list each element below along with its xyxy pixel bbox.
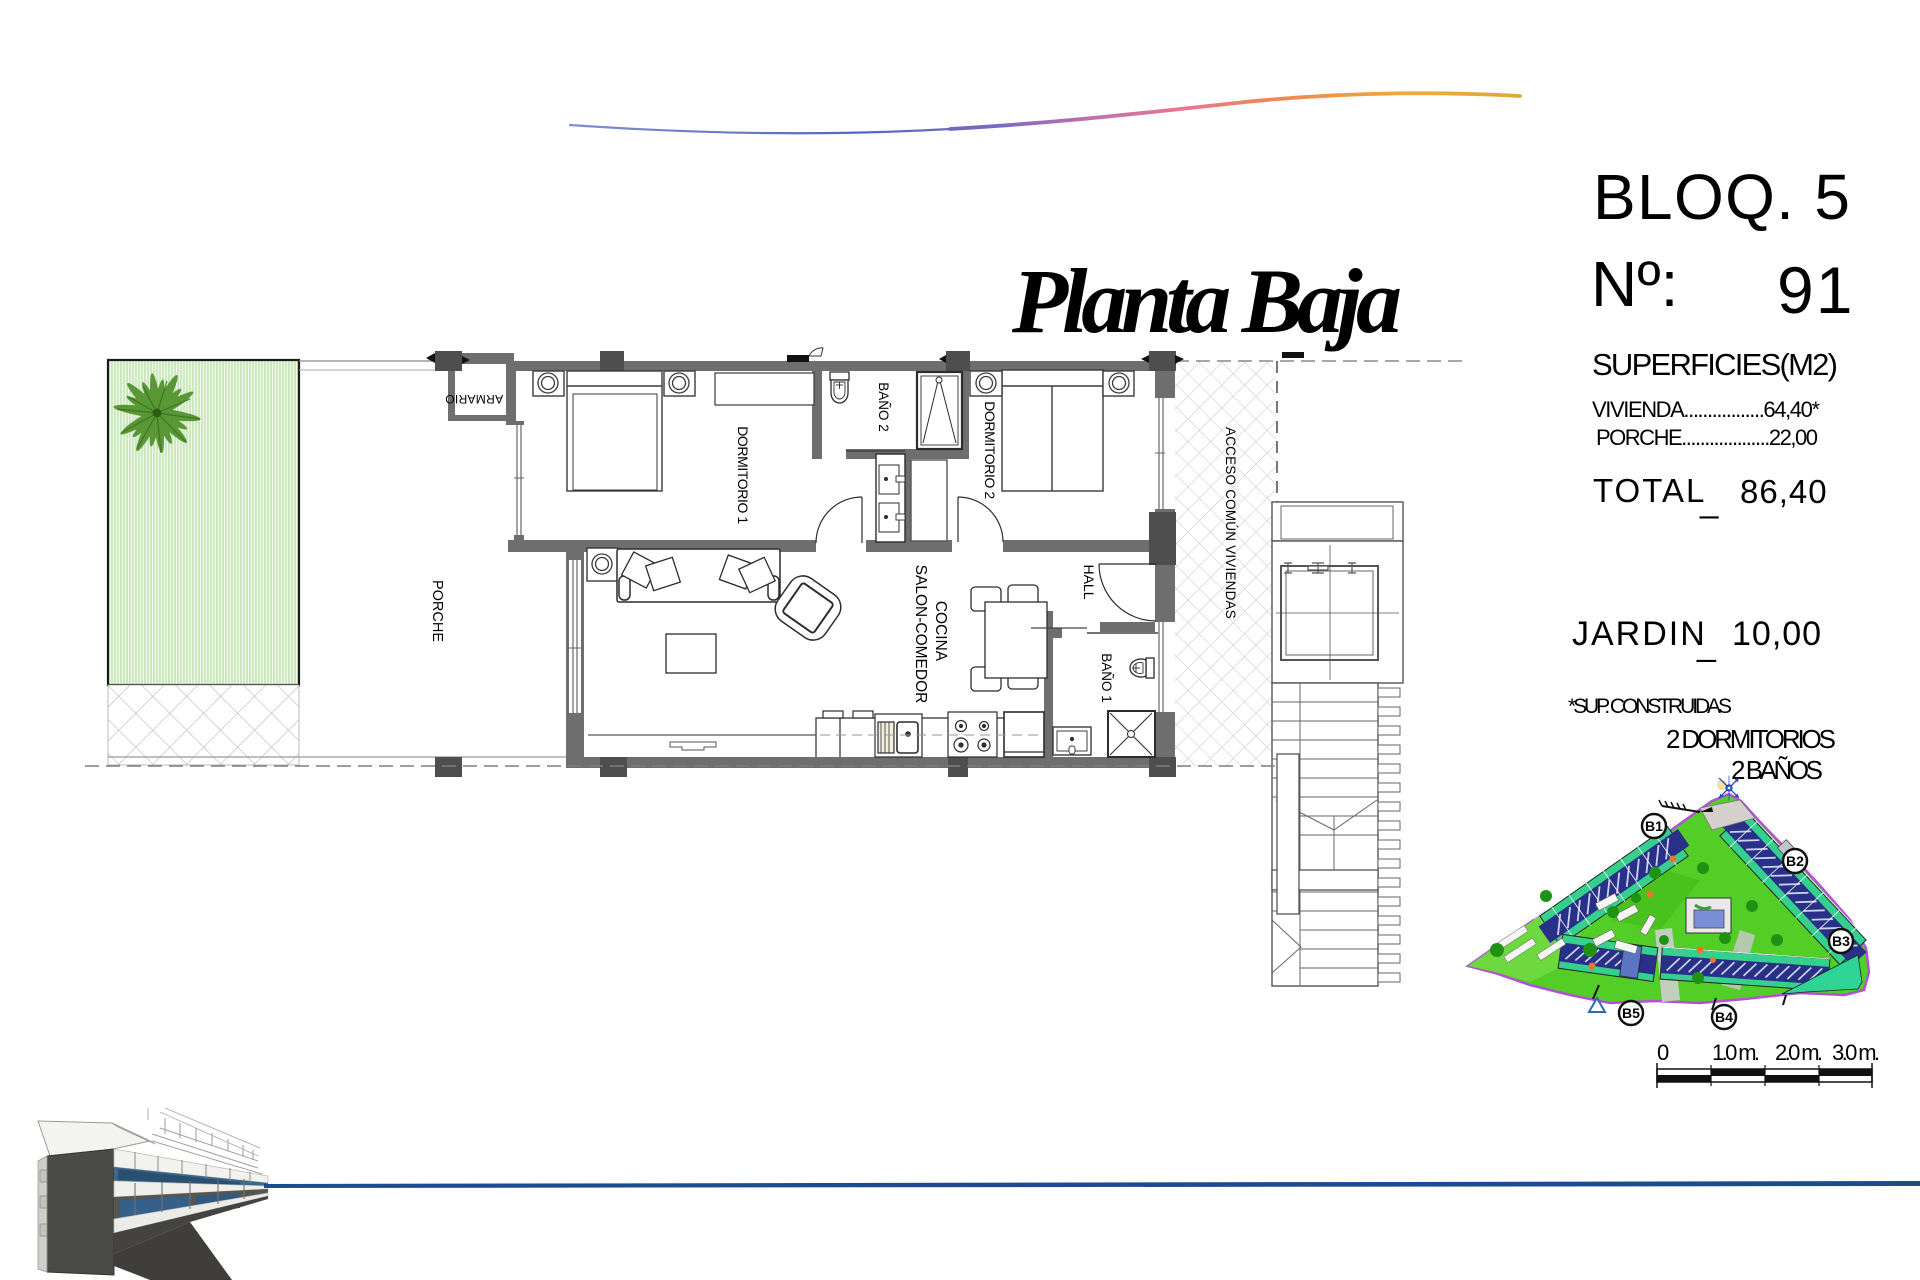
svg-text:_: _ <box>1699 482 1719 519</box>
svg-text:B5: B5 <box>1622 1005 1640 1021</box>
svg-text:2 DORMITORIOS: 2 DORMITORIOS <box>1666 724 1836 754</box>
svg-text:*SUP. CONSTRUIDAS: *SUP. CONSTRUIDAS <box>1568 695 1732 718</box>
svg-text:Nº:: Nº: <box>1591 248 1678 320</box>
svg-text:3.0 m.: 3.0 m. <box>1832 1040 1880 1065</box>
svg-text:ACCESO COMÚN VIVIENDAS: ACCESO COMÚN VIVIENDAS <box>1223 427 1238 619</box>
svg-text:TOTAL: TOTAL <box>1593 472 1706 509</box>
svg-text:86,40: 86,40 <box>1740 473 1828 510</box>
svg-text:HALL: HALL <box>1081 564 1097 599</box>
svg-text:B2: B2 <box>1786 853 1804 869</box>
svg-text:DORMITORIO 1: DORMITORIO 1 <box>735 426 751 524</box>
svg-text:BAÑO 2: BAÑO 2 <box>876 382 891 432</box>
svg-text:B3: B3 <box>1832 933 1850 949</box>
svg-text:BLOQ. 5: BLOQ. 5 <box>1593 161 1853 233</box>
svg-text:BAÑO 1: BAÑO 1 <box>1099 653 1114 703</box>
svg-text:ARMARIO: ARMARIO <box>445 392 503 406</box>
svg-text:B4: B4 <box>1715 1009 1733 1025</box>
svg-text:JARDIN: JARDIN <box>1572 615 1707 653</box>
svg-text:1.0 m.: 1.0 m. <box>1712 1040 1760 1065</box>
svg-text:SUPERFICIES(M2): SUPERFICIES(M2) <box>1592 347 1838 382</box>
svg-text:91: 91 <box>1777 253 1854 327</box>
svg-text:VIVIENDA.................64,40: VIVIENDA.................64,40* <box>1592 397 1820 422</box>
svg-text:0: 0 <box>1657 1040 1669 1065</box>
svg-text:2.0 m.: 2.0 m. <box>1775 1040 1823 1065</box>
svg-text:DORMITORIO 2: DORMITORIO 2 <box>982 401 998 499</box>
svg-text:_: _ <box>1696 625 1717 663</box>
svg-text:B1: B1 <box>1645 818 1663 834</box>
svg-text:COCINA: COCINA <box>932 601 949 662</box>
svg-text:SALON-COMEDOR: SALON-COMEDOR <box>912 565 929 704</box>
svg-text:2 BAÑOS: 2 BAÑOS <box>1731 755 1823 785</box>
svg-text:Planta Baja: Planta Baja <box>1011 250 1402 352</box>
svg-text:10,00: 10,00 <box>1732 615 1822 653</box>
svg-text:PORCHE...................22,00: PORCHE...................22,00 <box>1596 425 1818 450</box>
svg-text:PORCHE: PORCHE <box>429 580 445 642</box>
